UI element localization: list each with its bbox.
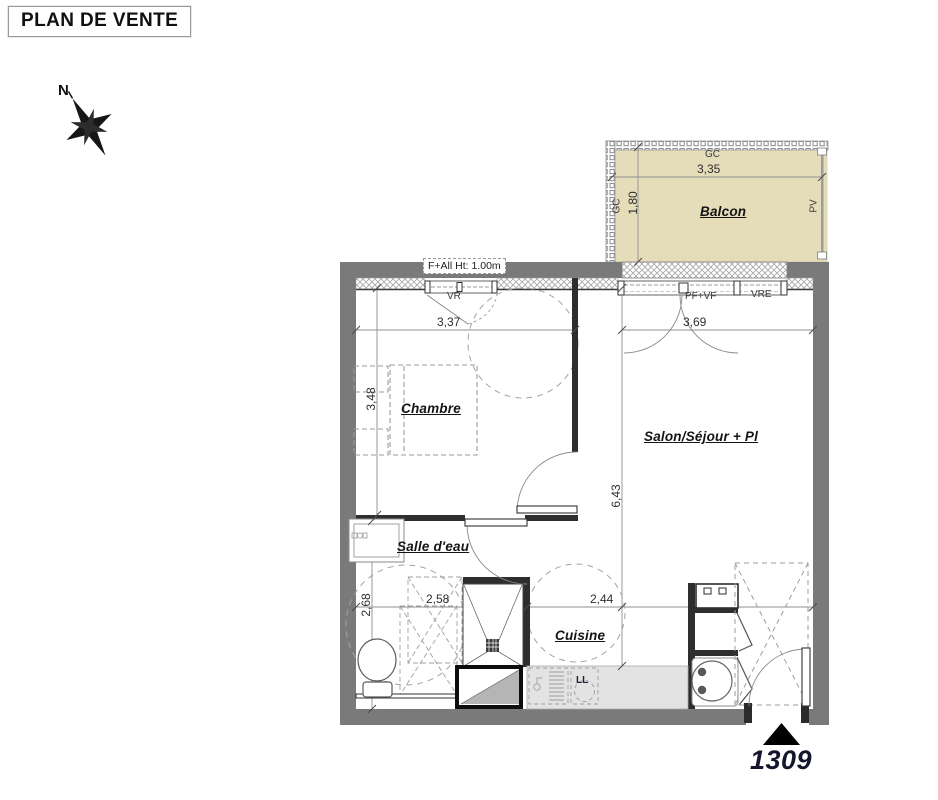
entrance-marker-triangle: [763, 723, 800, 745]
balcony-sill: [622, 262, 787, 278]
room-label-bathroom: Salle d'eau: [397, 539, 469, 554]
exterior-walls: [340, 262, 829, 725]
bedroom-window: [425, 281, 497, 324]
bedroom-window-note: F+All Ht: 1.00m: [423, 258, 506, 274]
entrance-door: [744, 648, 810, 723]
compass-north-label: N: [58, 82, 69, 99]
dim-bathroom-width: 2,58: [426, 592, 449, 606]
balcony-width-dim: 3,35: [697, 162, 720, 176]
entrance-door-leaf: [802, 648, 810, 706]
room-label-kitchen: Cuisine: [555, 628, 605, 643]
privacy-screen-label: PV: [809, 199, 820, 212]
water-heater-icon: [692, 661, 732, 701]
shower: [463, 584, 523, 667]
floor-plan-page: PLAN DE VENTE N GC 3,35 GC 1,80 PV Balco…: [0, 0, 938, 800]
balcony-depth-dim: 1,80: [626, 191, 640, 214]
lot-number: 1309: [748, 745, 814, 776]
entry-closet: [692, 584, 752, 706]
shelf-unit-icon: [696, 584, 738, 608]
room-label-living: Salon/Séjour + Pl: [644, 429, 758, 444]
technical-duct: [457, 667, 521, 707]
room-label-balcony: Balcon: [700, 204, 746, 219]
dim-bedroom-depth: 3,48: [364, 387, 378, 410]
bedroom-window-label: VR: [447, 291, 461, 302]
dim-kitchen-width: 2,44: [590, 592, 613, 606]
dimension-lines: [356, 288, 813, 709]
balcony-rail-top-label: GC: [705, 149, 720, 160]
bifold-door-upper: [737, 613, 752, 651]
interior-walls: [356, 278, 738, 709]
bathroom-door: [465, 519, 527, 584]
dim-bathroom-depth: 2,68: [359, 593, 373, 616]
balcony-door-label: PF+VF: [685, 291, 716, 302]
living-window-label: VRE: [751, 289, 772, 300]
washing-machine-label: LL: [576, 675, 588, 686]
entry-storage-zone: [735, 563, 808, 705]
shower-drain-icon: [486, 639, 499, 652]
dim-living-depth: 6,43: [609, 484, 623, 507]
kitchen-counter: [527, 666, 688, 709]
floor-plan-canvas: [0, 0, 938, 800]
balcony-rail-left-label: GC: [612, 199, 623, 214]
dim-living-width: 3,69: [683, 315, 706, 329]
washbasin-icon: [349, 519, 404, 562]
room-label-bedroom: Chambre: [401, 401, 461, 416]
dim-bedroom-width: 3,37: [437, 315, 460, 329]
bedroom-door: [517, 452, 577, 513]
privacy-screen: [821, 153, 824, 255]
toilet-icon: [358, 639, 396, 697]
page-title: PLAN DE VENTE: [8, 6, 191, 37]
